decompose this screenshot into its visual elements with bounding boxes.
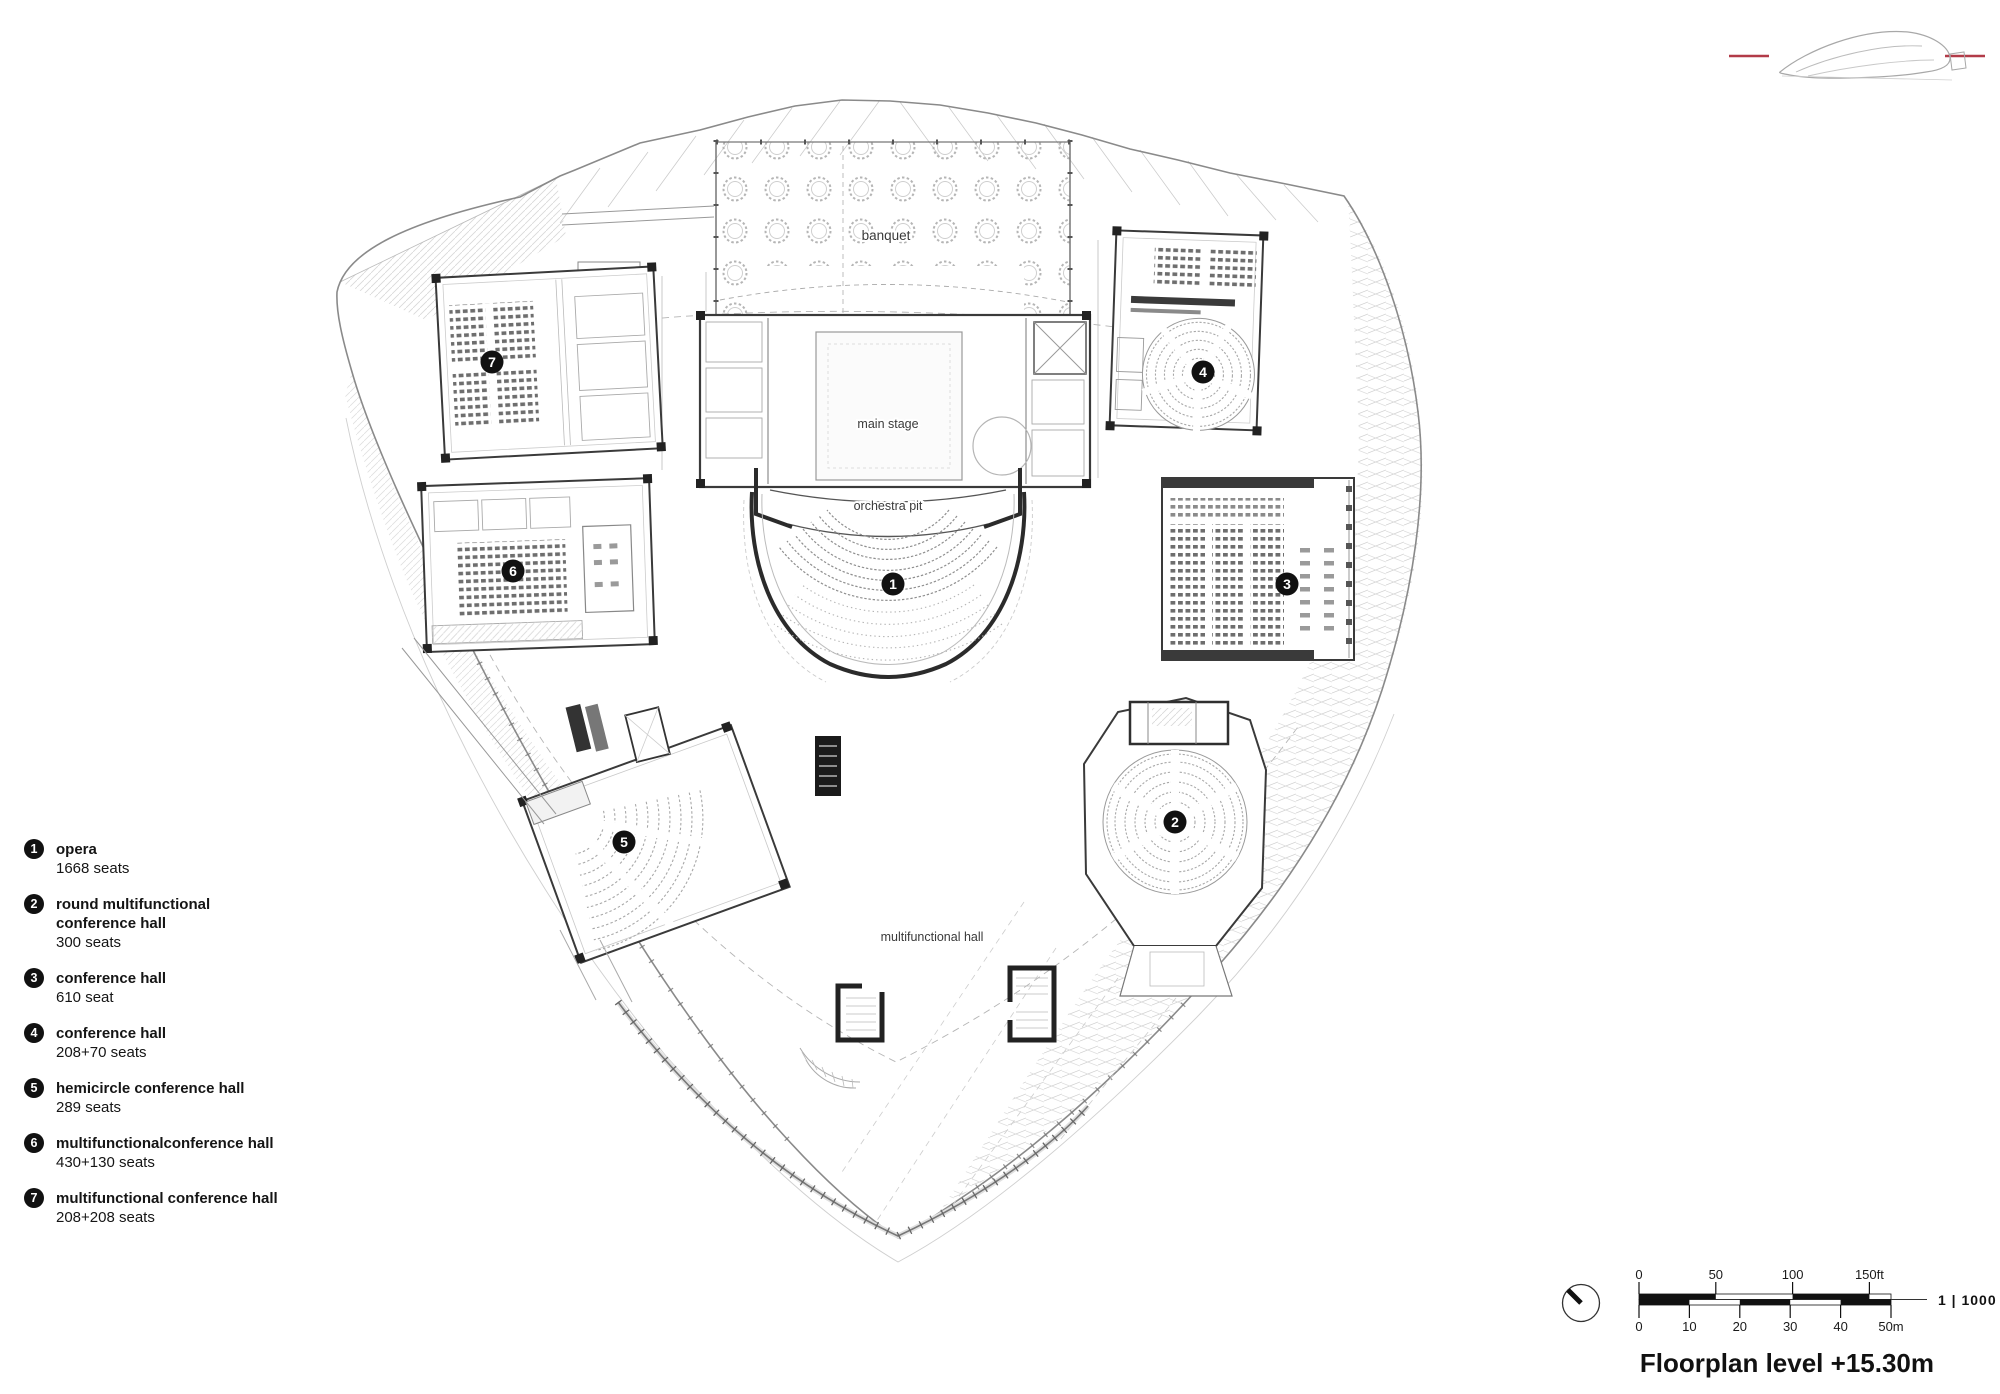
legend-item-hemicircle: 5 hemicircle conference hall 289 seats xyxy=(24,1079,324,1117)
hall-badge-7: 7 xyxy=(481,351,504,374)
legend-title: multifunctionalconference hall xyxy=(56,1134,274,1153)
svg-text:1: 1 xyxy=(889,576,897,592)
legend-item-round-hall: 2 round multifunctional conference hall … xyxy=(24,895,324,952)
scale-ratio: 1 | 1000 xyxy=(1938,1292,1997,1308)
label-orchestra-pit: orchestra pit xyxy=(854,499,923,513)
scale-m-0: 0 xyxy=(1635,1319,1642,1334)
label-multifunctional-hall: multifunctional hall xyxy=(881,930,984,944)
svg-text:5: 5 xyxy=(620,834,628,850)
sheet-title: Floorplan level +15.30m xyxy=(1640,1348,1934,1379)
scale-bar: 0 50 100 150ft 0 10 20 30 40 50m xyxy=(1629,1270,1931,1336)
legend-badge-4: 4 xyxy=(24,1023,44,1043)
legend-title: opera xyxy=(56,840,129,859)
legend: 1 opera 1668 seats 2 round multifunction… xyxy=(24,840,324,1244)
legend-title: multifunctional conference hall xyxy=(56,1189,278,1208)
label-banquet: banquet xyxy=(862,228,911,243)
hall-badge-4: 4 xyxy=(1192,361,1215,384)
hall-badge-3: 3 xyxy=(1276,573,1299,596)
svg-text:2: 2 xyxy=(1171,814,1179,830)
hall-badge-1: 1 xyxy=(882,573,905,596)
scale-m-20: 20 xyxy=(1733,1319,1747,1334)
north-arrow-icon xyxy=(1560,1282,1602,1324)
legend-seats: 1668 seats xyxy=(56,859,129,878)
legend-item-multifunctional-430: 6 multifunctionalconference hall 430+130… xyxy=(24,1134,324,1172)
legend-title: round multifunctional conference hall xyxy=(56,895,210,933)
scale-m-10: 10 xyxy=(1682,1319,1696,1334)
floorplan-sheet: banquet main stage xyxy=(0,0,2000,1394)
scale-m-50: 50m xyxy=(1878,1319,1903,1334)
svg-text:6: 6 xyxy=(509,563,517,579)
legend-seats: 610 seat xyxy=(56,988,166,1007)
svg-text:4: 4 xyxy=(1199,364,1207,380)
hall-7 xyxy=(431,262,666,463)
legend-title: hemicircle conference hall xyxy=(56,1079,244,1098)
multifunctional-hall: multifunctional hall xyxy=(800,930,1054,1088)
core-slab xyxy=(815,736,841,796)
hall-4 xyxy=(1105,226,1268,435)
legend-badge-2: 2 xyxy=(24,894,44,914)
hall-6 xyxy=(417,474,658,653)
legend-seats: 300 seats xyxy=(56,933,210,952)
legend-seats: 289 seats xyxy=(56,1098,244,1117)
scale-m-30: 30 xyxy=(1783,1319,1797,1334)
legend-seats: 208+70 seats xyxy=(56,1043,166,1062)
hall-2 xyxy=(1084,698,1266,996)
hall-badge-5: 5 xyxy=(613,831,636,854)
scale-ft-50: 50 xyxy=(1709,1270,1723,1282)
logo-building-outline xyxy=(1780,32,1966,80)
legend-badge-1: 1 xyxy=(24,839,44,859)
legend-badge-5: 5 xyxy=(24,1078,44,1098)
scale-ft-100: 100 xyxy=(1782,1270,1804,1282)
legend-seats: 430+130 seats xyxy=(56,1153,274,1172)
hall-badge-6: 6 xyxy=(502,560,525,583)
legend-seats: 208+208 seats xyxy=(56,1208,278,1227)
legend-title: conference hall xyxy=(56,969,166,988)
building-elevation-icon xyxy=(1712,10,2000,102)
legend-item-multifunctional-208: 7 multifunctional conference hall 208+20… xyxy=(24,1189,324,1227)
legend-item-conference-610: 3 conference hall 610 seat xyxy=(24,969,324,1007)
scale-ft-150: 150ft xyxy=(1855,1270,1884,1282)
legend-title: conference hall xyxy=(56,1024,166,1043)
scale-ft-0: 0 xyxy=(1635,1270,1642,1282)
hall-badge-2: 2 xyxy=(1164,811,1187,834)
svg-text:7: 7 xyxy=(488,354,496,370)
legend-badge-3: 3 xyxy=(24,968,44,988)
legend-badge-7: 7 xyxy=(24,1188,44,1208)
legend-item-conference-208-70: 4 conference hall 208+70 seats xyxy=(24,1024,324,1062)
legend-badge-6: 6 xyxy=(24,1133,44,1153)
label-main-stage: main stage xyxy=(857,417,918,431)
scale-m-40: 40 xyxy=(1833,1319,1847,1334)
svg-text:3: 3 xyxy=(1283,576,1291,592)
legend-item-opera: 1 opera 1668 seats xyxy=(24,840,324,878)
hall-3 xyxy=(1162,478,1354,660)
